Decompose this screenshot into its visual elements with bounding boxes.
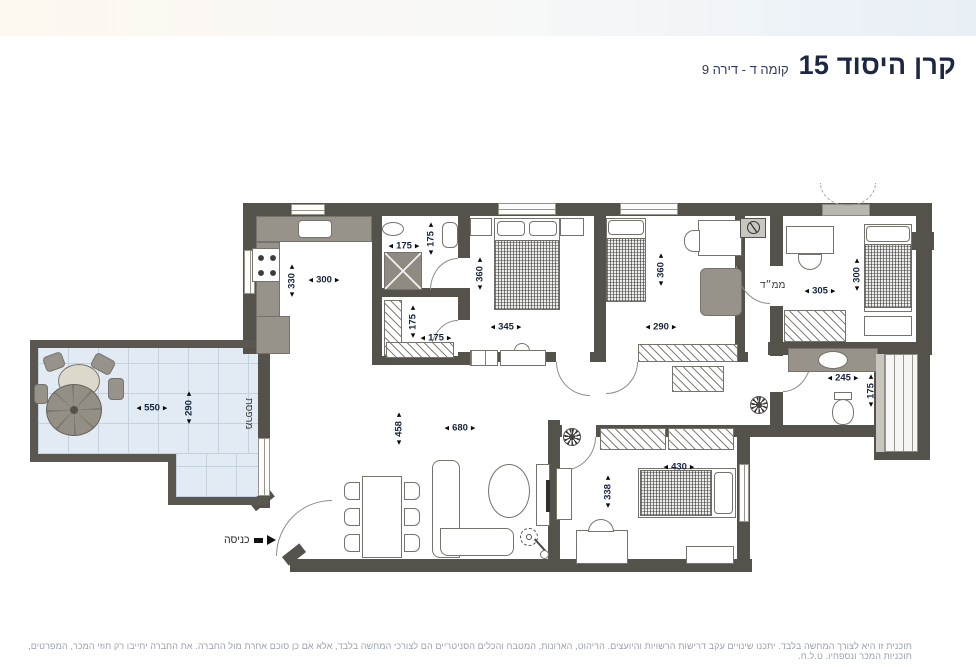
wall-segment — [290, 559, 752, 572]
bedroom1-window — [498, 203, 556, 215]
dining-chair — [344, 508, 360, 526]
entrance-door-arc — [276, 500, 332, 556]
dim-mamad-depth: 300 — [852, 256, 863, 294]
hall-closet — [672, 366, 724, 392]
door-arc — [606, 362, 638, 394]
closet — [668, 428, 734, 450]
bed-blanket — [606, 238, 646, 302]
dim-kitchen-depth: 330 — [287, 262, 298, 300]
desk-chair — [684, 230, 700, 252]
closet — [600, 428, 666, 450]
nightstand — [560, 218, 584, 236]
dim-living-width: 680 — [445, 423, 476, 434]
dim-service-depth: 175 — [408, 303, 419, 341]
closet — [784, 310, 846, 342]
fan-symbol — [520, 528, 538, 546]
closet — [638, 344, 738, 362]
toilet — [832, 399, 854, 425]
entrance-arrow-icon — [267, 535, 276, 545]
bed-blanket — [494, 240, 560, 310]
dim-bedroom1-width: 345 — [491, 322, 522, 333]
door-opening — [458, 320, 470, 352]
bedroom2-window — [620, 203, 678, 215]
dim-bathroom-depth: 175 — [866, 372, 877, 410]
bed-blanket — [864, 244, 912, 308]
entrance-marker: כניסה — [224, 534, 276, 546]
door-opening — [770, 356, 783, 392]
patio-chair — [34, 384, 48, 404]
bedroom3-window — [739, 464, 749, 522]
dining-chair — [404, 482, 420, 500]
closet — [470, 350, 498, 366]
pillow — [608, 220, 644, 235]
entrance-label: כניסה — [224, 534, 250, 546]
dim-service-width: 175 — [421, 333, 452, 344]
nightstand — [470, 218, 492, 236]
side-table — [864, 316, 912, 336]
pillow — [497, 221, 525, 236]
vanity-table — [500, 350, 546, 366]
pillow — [529, 221, 557, 236]
balcony-label: מרפסת — [243, 398, 254, 429]
laundry-unit — [386, 342, 454, 358]
dim-balcony-depth: 290 — [184, 389, 195, 427]
door-opening — [606, 352, 638, 362]
dim-bedroom2-depth: 360 — [656, 251, 667, 289]
wall-segment — [916, 203, 932, 355]
wall-segment — [918, 352, 930, 458]
dim-bedroom3-depth: 338 — [603, 473, 614, 511]
tv — [546, 480, 550, 512]
dim-kitchen-width: 300 — [309, 275, 340, 286]
pillow — [714, 472, 733, 514]
dim-living-depth: 458 — [394, 410, 405, 448]
sun-symbol — [563, 428, 581, 446]
shaft-edge — [876, 354, 884, 452]
dining-chair — [404, 508, 420, 526]
dresser — [556, 468, 572, 520]
pergola-shaft — [884, 354, 918, 452]
dim-bedroom2-width: 290 — [646, 322, 677, 333]
dim-bedroom1-depth: 360 — [475, 255, 486, 293]
door-opening — [458, 258, 470, 288]
kitchen-cabinet — [256, 316, 290, 354]
bench — [686, 546, 734, 564]
bed-blanket — [640, 470, 712, 516]
sofa-seat — [440, 528, 514, 556]
balcony-wall — [168, 497, 268, 505]
desk-chair — [588, 519, 614, 532]
armchair — [700, 268, 742, 316]
fan-base — [540, 550, 549, 559]
balcony-floor-lower — [176, 454, 258, 497]
dim-balcony-width: 550 — [137, 403, 168, 414]
balcony-wall — [30, 340, 266, 348]
dim-shower-depth: 175 — [426, 220, 437, 258]
dim-bedroom3-width: 430 — [664, 462, 695, 473]
desk-chair — [798, 254, 822, 270]
kitchen-sink — [298, 220, 332, 238]
mamad-label: ממ״ד — [760, 280, 785, 291]
vanity-mirror — [514, 343, 530, 351]
patio-umbrella — [46, 384, 102, 436]
dining-chair — [404, 534, 420, 552]
door-arc — [556, 362, 590, 396]
balcony-door — [258, 438, 270, 496]
dim-shower-width: 175 — [389, 241, 420, 252]
door-arc — [430, 258, 458, 290]
wall-segment — [594, 216, 606, 362]
dining-table — [362, 476, 402, 558]
dining-chair — [344, 534, 360, 552]
dining-chair — [344, 482, 360, 500]
sun-symbol — [750, 396, 768, 414]
bathroom-sink — [382, 222, 404, 236]
dim-mamad-width: 305 — [805, 286, 836, 297]
wall-segment — [737, 425, 885, 437]
shower — [384, 252, 422, 290]
door-opening — [556, 352, 590, 362]
electrical-panel — [740, 218, 766, 238]
disclaimer-text: תוכנית זו היא לצורך המחשה בלבד. יתכנו שי… — [0, 641, 912, 661]
entrance-arrow-icon — [254, 538, 263, 543]
kitchen-window — [291, 204, 325, 215]
pillow — [866, 226, 910, 242]
toilet — [442, 222, 458, 248]
floor-plan: מרפסת ממ״ד כניסה 300 330 175 175 175 175… — [0, 0, 976, 667]
dim-bathroom-width: 245 — [828, 373, 859, 384]
desk — [786, 226, 834, 254]
desk — [576, 530, 628, 564]
coffee-table — [488, 464, 530, 518]
stove — [252, 248, 280, 282]
balcony-wall — [30, 454, 176, 462]
patio-chair — [108, 378, 124, 400]
desk — [698, 220, 742, 256]
bathroom-sink — [818, 351, 848, 369]
